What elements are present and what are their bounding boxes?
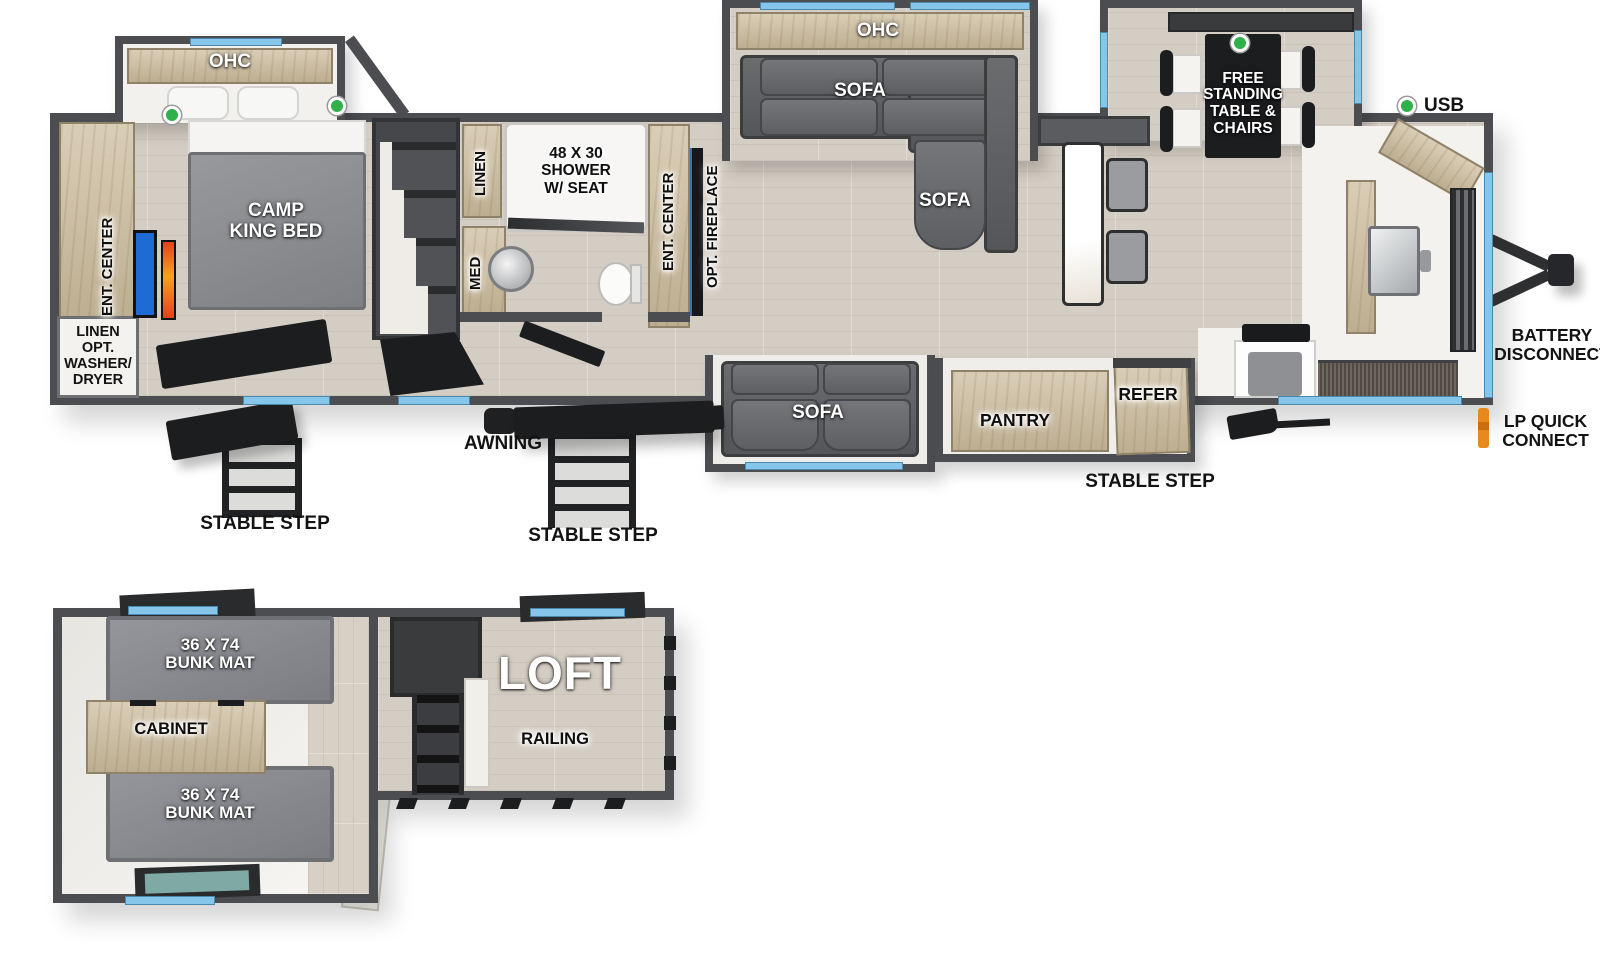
dinette-chair-back	[1302, 102, 1315, 148]
railing-post	[448, 798, 470, 809]
linen-label: LINEN	[468, 138, 494, 210]
stable-step-ladder	[222, 438, 302, 518]
refrigerator-top	[1113, 358, 1191, 368]
skylight-window	[125, 896, 215, 905]
railing-post	[500, 798, 522, 809]
front-window	[1484, 172, 1493, 398]
living-ohc-label: OHC	[838, 19, 918, 43]
living-slide-window-left	[760, 2, 895, 10]
stair-tread	[380, 190, 404, 238]
sofa-chaise-label: SOFA	[905, 188, 985, 214]
bedroom-ent-center-label: ENT. CENTER	[96, 208, 120, 326]
skylight-glass	[145, 870, 250, 894]
mid-window	[398, 396, 470, 405]
bedroom-tv	[133, 230, 157, 318]
sofa-back-cushion	[731, 363, 819, 395]
dinette-window-right	[1354, 30, 1362, 104]
kitchen-island	[1062, 142, 1104, 306]
cabinet-fronts-textured	[1318, 360, 1458, 398]
stair-tread	[380, 142, 392, 190]
bathroom-wall	[460, 312, 602, 322]
door-side-sofa-label: SOFA	[778, 400, 858, 426]
living-slide-window-right	[910, 2, 1030, 10]
sectional-sofa-back-right	[984, 55, 1018, 253]
rv-floorplan-diagram: OHC OHC SOFA SOFA FREE STANDING TABLE & …	[0, 0, 1600, 959]
sofa-back-cushion	[823, 363, 911, 395]
bunk-mat-top-label: 36 X 74 BUNK MAT	[126, 634, 294, 674]
refer-label: REFER	[1108, 383, 1188, 407]
bedroom-ohc-label: OHC	[190, 50, 270, 74]
railing-post	[664, 676, 676, 690]
opt-fireplace-label: OPT. FIREPLACE	[700, 156, 726, 298]
bar-stool	[1106, 158, 1148, 212]
skylight-window	[530, 608, 625, 617]
railing-post	[664, 756, 676, 770]
range-burners	[1242, 324, 1310, 342]
dinette-overhead-cabinet	[1168, 12, 1354, 32]
battery-disconnect-label: BATTERY DISCONNECT	[1500, 324, 1600, 366]
dinette-chair-back	[1160, 50, 1173, 96]
bath-ent-center-label: ENT. CENTER	[656, 162, 682, 282]
bedroom-pillow	[237, 86, 299, 120]
led-indicator-icon	[1398, 97, 1416, 115]
awning-label: AWNING	[458, 432, 548, 456]
hitch-bar	[1489, 269, 1552, 306]
stable-step-rod	[1272, 418, 1330, 428]
dinette-chair-back	[1160, 106, 1173, 152]
cabinet-label: CABINET	[116, 716, 226, 742]
dinette-chair-back	[1302, 46, 1315, 92]
hitch-bar	[1489, 235, 1552, 272]
stable-step-front-label: STABLE STEP	[1085, 470, 1215, 494]
usb-label: USB	[1424, 94, 1484, 118]
bathroom-wall	[648, 312, 690, 322]
dinette-label: FREE STANDING TABLE & CHAIRS	[1201, 56, 1285, 152]
cabinet-hinge	[130, 700, 156, 706]
toilet	[598, 262, 634, 306]
stair-tread	[380, 286, 428, 334]
bedroom-corner-wall	[345, 36, 409, 119]
loft-label: LOFT	[485, 646, 635, 702]
linen-washer-dryer-label: LINEN OPT. WASHER/ DRYER	[60, 320, 136, 394]
door-side-slide-window	[745, 462, 903, 470]
railing-post	[604, 798, 626, 809]
kitchen-sink	[1368, 226, 1420, 296]
oven-front	[1248, 352, 1302, 396]
med-label: MED	[464, 244, 488, 302]
camp-king-bed-label: CAMP KING BED	[192, 200, 360, 244]
skylight-window	[128, 606, 218, 615]
railing-post	[552, 798, 574, 809]
loft-stair-treads	[412, 695, 464, 795]
kitchen-faucet	[1420, 250, 1431, 272]
led-indicator-icon	[328, 97, 346, 115]
bunk-mat-bottom-label: 36 X 74 BUNK MAT	[126, 784, 294, 824]
bedroom-fireplace	[161, 240, 176, 320]
lp-quick-connect-label: LP QUICK CONNECT	[1498, 410, 1593, 452]
stable-step-main-label: STABLE STEP	[528, 524, 658, 548]
bath-sink	[488, 246, 534, 292]
railing-post	[664, 716, 676, 730]
dinette-chair	[1172, 108, 1202, 148]
lp-connector	[1478, 408, 1489, 448]
shower-label: 48 X 30 SHOWER W/ SEAT	[511, 142, 641, 200]
bedroom-slide-window	[190, 38, 282, 46]
railing-post	[396, 798, 418, 809]
refrigerator	[1113, 361, 1190, 456]
front-closet-louvers	[1450, 188, 1476, 352]
bedroom-door-sill	[243, 396, 330, 405]
bar-stool	[1106, 230, 1148, 284]
railing-label: RAILING	[503, 726, 607, 752]
awning-roller	[484, 408, 516, 434]
stable-step-ladder	[548, 432, 636, 528]
dinette-window-left	[1100, 32, 1108, 108]
railing-post	[664, 636, 676, 650]
hitch-coupler	[1548, 254, 1574, 286]
dinette-chair	[1172, 54, 1202, 94]
skylight-frame	[520, 592, 646, 622]
stair-tread	[380, 238, 416, 286]
led-indicator-icon	[163, 106, 181, 124]
galley-window	[1278, 396, 1462, 405]
stable-step-rear-label: STABLE STEP	[200, 512, 330, 536]
led-indicator-icon	[1231, 34, 1249, 52]
pantry-label: PANTRY	[965, 408, 1065, 434]
sofa-label: SOFA	[820, 78, 900, 104]
toilet-tank	[630, 264, 642, 304]
cabinet-hinge	[218, 700, 244, 706]
